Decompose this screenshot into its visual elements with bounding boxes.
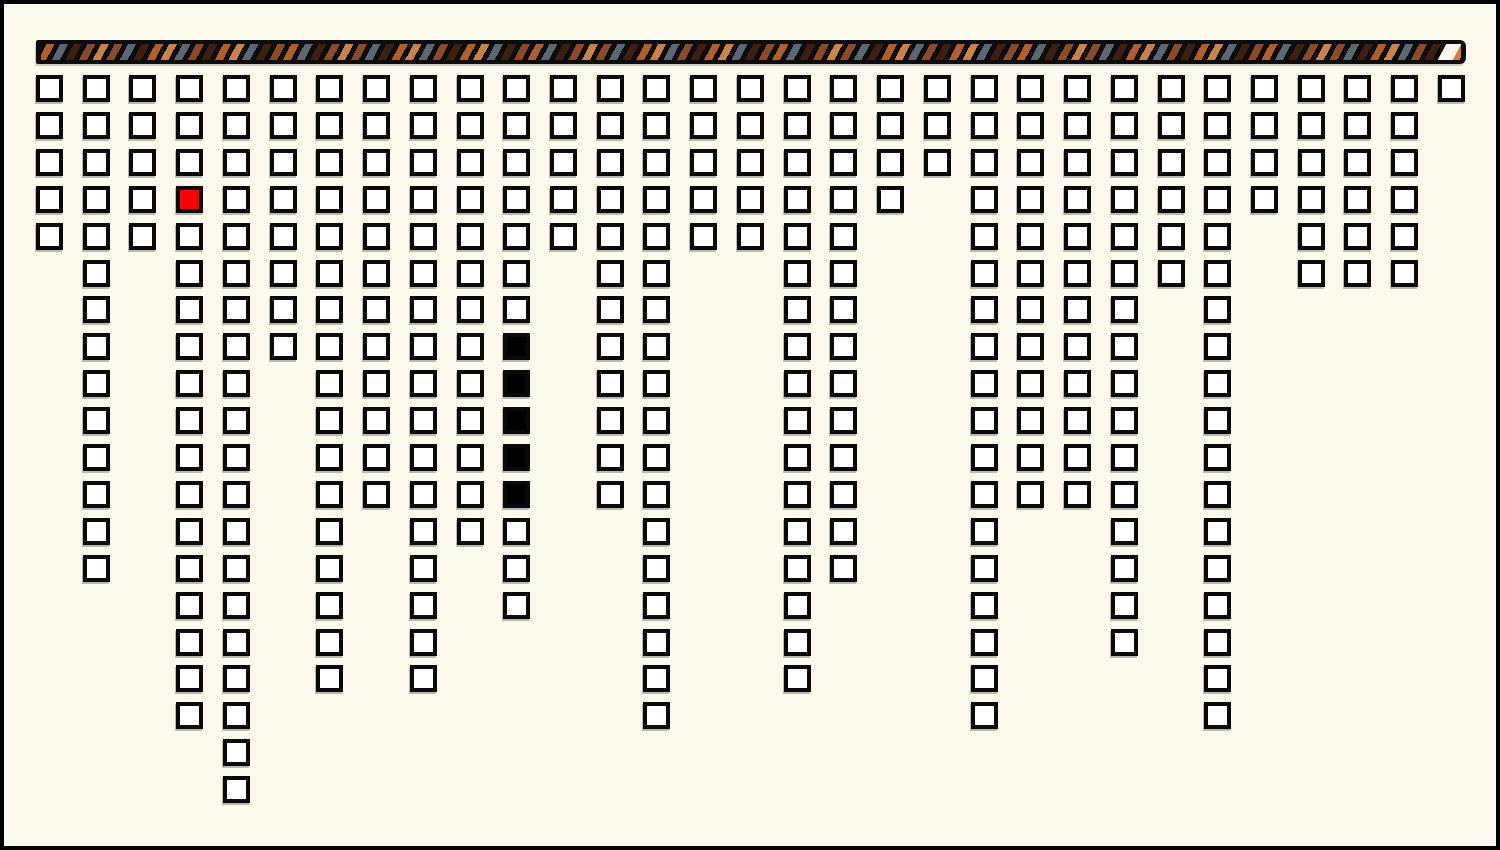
grid-cell[interactable] [643, 702, 670, 729]
grid-cell[interactable] [223, 518, 250, 545]
grid-cell[interactable] [550, 223, 577, 250]
grid-cell[interactable] [784, 186, 811, 213]
grid-cell[interactable] [363, 370, 390, 397]
grid-cell[interactable] [643, 481, 670, 508]
grid-cell[interactable] [223, 370, 250, 397]
grid-cell[interactable] [83, 112, 110, 139]
grid-cell[interactable] [503, 260, 530, 287]
grid-cell[interactable] [176, 370, 203, 397]
grid-cell[interactable] [784, 223, 811, 250]
grid-cell[interactable] [971, 112, 998, 139]
grid-cell[interactable] [971, 407, 998, 434]
grid-cell[interactable] [1064, 75, 1091, 102]
grid-cell[interactable] [1204, 629, 1231, 656]
grid-cell[interactable] [597, 75, 624, 102]
grid-cell[interactable] [457, 112, 484, 139]
grid-cell[interactable] [784, 112, 811, 139]
grid-cell[interactable] [1111, 370, 1138, 397]
grid-cell[interactable] [550, 112, 577, 139]
grid-cell[interactable] [971, 296, 998, 323]
grid-cell[interactable] [643, 629, 670, 656]
grid-cell[interactable] [1111, 260, 1138, 287]
filled-cell-black[interactable] [503, 370, 530, 397]
grid-cell[interactable] [737, 75, 764, 102]
highlighted-cell-red[interactable] [176, 186, 203, 213]
grid-cell[interactable] [597, 444, 624, 471]
grid-cell[interactable] [597, 149, 624, 176]
grid-cell[interactable] [176, 555, 203, 582]
grid-cell[interactable] [1391, 112, 1418, 139]
grid-cell[interactable] [1204, 260, 1231, 287]
grid-cell[interactable] [410, 75, 437, 102]
grid-cell[interactable] [223, 75, 250, 102]
grid-cell[interactable] [971, 555, 998, 582]
grid-cell[interactable] [1017, 223, 1044, 250]
grid-cell[interactable] [316, 112, 343, 139]
grid-cell[interactable] [784, 75, 811, 102]
grid-cell[interactable] [503, 296, 530, 323]
grid-cell[interactable] [223, 776, 250, 803]
grid-cell[interactable] [363, 112, 390, 139]
grid-cell[interactable] [270, 333, 297, 360]
grid-cell[interactable] [971, 665, 998, 692]
grid-cell[interactable] [176, 665, 203, 692]
grid-cell[interactable] [1017, 260, 1044, 287]
grid-cell[interactable] [1204, 296, 1231, 323]
grid-cell[interactable] [1064, 149, 1091, 176]
grid-cell[interactable] [784, 333, 811, 360]
grid-cell[interactable] [363, 186, 390, 213]
grid-cell[interactable] [1204, 149, 1231, 176]
grid-cell[interactable] [737, 223, 764, 250]
grid-cell[interactable] [223, 112, 250, 139]
grid-cell[interactable] [457, 186, 484, 213]
grid-cell[interactable] [1391, 186, 1418, 213]
grid-cell[interactable] [1158, 149, 1185, 176]
grid-cell[interactable] [316, 223, 343, 250]
grid-cell[interactable] [1111, 75, 1138, 102]
grid-cell[interactable] [597, 260, 624, 287]
grid-cell[interactable] [1251, 75, 1278, 102]
grid-cell[interactable] [176, 592, 203, 619]
grid-cell[interactable] [1391, 75, 1418, 102]
grid-cell[interactable] [1391, 260, 1418, 287]
grid-cell[interactable] [690, 223, 717, 250]
grid-cell[interactable] [1111, 223, 1138, 250]
grid-cell[interactable] [410, 592, 437, 619]
grid-cell[interactable] [1111, 112, 1138, 139]
grid-cell[interactable] [1017, 75, 1044, 102]
grid-cell[interactable] [223, 186, 250, 213]
grid-cell[interactable] [690, 75, 717, 102]
grid-cell[interactable] [1111, 592, 1138, 619]
grid-cell[interactable] [1158, 260, 1185, 287]
grid-cell[interactable] [597, 186, 624, 213]
grid-cell[interactable] [971, 75, 998, 102]
grid-cell[interactable] [176, 223, 203, 250]
grid-cell[interactable] [643, 296, 670, 323]
grid-cell[interactable] [971, 629, 998, 656]
grid-cell[interactable] [1391, 223, 1418, 250]
grid-cell[interactable] [270, 186, 297, 213]
grid-cell[interactable] [550, 75, 577, 102]
grid-cell[interactable] [643, 665, 670, 692]
grid-cell[interactable] [1204, 370, 1231, 397]
grid-cell[interactable] [176, 75, 203, 102]
grid-cell[interactable] [1344, 112, 1371, 139]
grid-cell[interactable] [971, 702, 998, 729]
grid-cell[interactable] [410, 223, 437, 250]
grid-cell[interactable] [784, 444, 811, 471]
grid-cell[interactable] [316, 407, 343, 434]
grid-cell[interactable] [316, 333, 343, 360]
grid-cell[interactable] [363, 260, 390, 287]
grid-cell[interactable] [410, 112, 437, 139]
grid-cell[interactable] [1204, 702, 1231, 729]
grid-cell[interactable] [1017, 112, 1044, 139]
grid-cell[interactable] [1204, 444, 1231, 471]
grid-cell[interactable] [363, 333, 390, 360]
grid-cell[interactable] [270, 223, 297, 250]
grid-cell[interactable] [36, 75, 63, 102]
grid-cell[interactable] [1298, 149, 1325, 176]
grid-cell[interactable] [1064, 407, 1091, 434]
grid-cell[interactable] [410, 260, 437, 287]
grid-cell[interactable] [1344, 186, 1371, 213]
grid-cell[interactable] [1158, 186, 1185, 213]
grid-cell[interactable] [1251, 149, 1278, 176]
grid-cell[interactable] [129, 149, 156, 176]
grid-cell[interactable] [270, 112, 297, 139]
grid-cell[interactable] [1064, 223, 1091, 250]
grid-cell[interactable] [457, 296, 484, 323]
grid-cell[interactable] [597, 481, 624, 508]
grid-cell[interactable] [223, 444, 250, 471]
grid-cell[interactable] [1204, 223, 1231, 250]
grid-cell[interactable] [971, 260, 998, 287]
grid-cell[interactable] [363, 481, 390, 508]
grid-cell[interactable] [316, 75, 343, 102]
grid-cell[interactable] [784, 555, 811, 582]
grid-cell[interactable] [410, 481, 437, 508]
grid-cell[interactable] [1158, 223, 1185, 250]
grid-cell[interactable] [830, 407, 857, 434]
grid-cell[interactable] [316, 629, 343, 656]
grid-cell[interactable] [690, 112, 717, 139]
grid-cell[interactable] [503, 186, 530, 213]
grid-cell[interactable] [784, 260, 811, 287]
grid-cell[interactable] [1064, 260, 1091, 287]
grid-cell[interactable] [316, 592, 343, 619]
grid-cell[interactable] [971, 223, 998, 250]
grid-cell[interactable] [1391, 149, 1418, 176]
grid-cell[interactable] [550, 149, 577, 176]
grid-cell[interactable] [223, 592, 250, 619]
grid-cell[interactable] [737, 149, 764, 176]
grid-cell[interactable] [643, 333, 670, 360]
grid-cell[interactable] [830, 518, 857, 545]
grid-cell[interactable] [457, 370, 484, 397]
grid-cell[interactable] [1344, 75, 1371, 102]
grid-cell[interactable] [316, 296, 343, 323]
grid-cell[interactable] [223, 481, 250, 508]
grid-cell[interactable] [784, 407, 811, 434]
grid-cell[interactable] [1064, 296, 1091, 323]
grid-cell[interactable] [457, 149, 484, 176]
grid-cell[interactable] [270, 75, 297, 102]
grid-cell[interactable] [784, 370, 811, 397]
grid-cell[interactable] [971, 186, 998, 213]
grid-cell[interactable] [877, 186, 904, 213]
grid-cell[interactable] [316, 665, 343, 692]
grid-cell[interactable] [1064, 112, 1091, 139]
grid-cell[interactable] [176, 260, 203, 287]
grid-cell[interactable] [316, 481, 343, 508]
grid-cell[interactable] [784, 481, 811, 508]
grid-cell[interactable] [1158, 75, 1185, 102]
grid-cell[interactable] [223, 296, 250, 323]
grid-cell[interactable] [83, 481, 110, 508]
grid-cell[interactable] [1204, 481, 1231, 508]
grid-cell[interactable] [316, 444, 343, 471]
grid-cell[interactable] [223, 333, 250, 360]
grid-cell[interactable] [410, 370, 437, 397]
grid-cell[interactable] [1204, 75, 1231, 102]
grid-cell[interactable] [129, 112, 156, 139]
grid-cell[interactable] [737, 112, 764, 139]
grid-cell[interactable] [1298, 260, 1325, 287]
grid-cell[interactable] [410, 555, 437, 582]
grid-cell[interactable] [971, 149, 998, 176]
grid-cell[interactable] [83, 296, 110, 323]
grid-cell[interactable] [83, 444, 110, 471]
grid-cell[interactable] [924, 149, 951, 176]
grid-cell[interactable] [83, 407, 110, 434]
grid-cell[interactable] [1017, 407, 1044, 434]
grid-cell[interactable] [270, 296, 297, 323]
grid-cell[interactable] [924, 112, 951, 139]
grid-cell[interactable] [1438, 75, 1465, 102]
grid-cell[interactable] [1298, 75, 1325, 102]
grid-cell[interactable] [457, 260, 484, 287]
grid-cell[interactable] [1204, 333, 1231, 360]
grid-cell[interactable] [316, 149, 343, 176]
grid-cell[interactable] [83, 75, 110, 102]
grid-cell[interactable] [503, 112, 530, 139]
grid-cell[interactable] [363, 296, 390, 323]
grid-cell[interactable] [1017, 149, 1044, 176]
grid-cell[interactable] [830, 370, 857, 397]
grid-cell[interactable] [971, 333, 998, 360]
grid-cell[interactable] [1111, 333, 1138, 360]
grid-cell[interactable] [1204, 518, 1231, 545]
grid-cell[interactable] [410, 518, 437, 545]
grid-cell[interactable] [316, 370, 343, 397]
filled-cell-black[interactable] [503, 444, 530, 471]
grid-cell[interactable] [223, 702, 250, 729]
grid-cell[interactable] [830, 149, 857, 176]
grid-cell[interactable] [457, 223, 484, 250]
grid-cell[interactable] [363, 223, 390, 250]
grid-cell[interactable] [129, 186, 156, 213]
grid-cell[interactable] [690, 186, 717, 213]
grid-cell[interactable] [457, 481, 484, 508]
grid-cell[interactable] [1344, 149, 1371, 176]
grid-cell[interactable] [1017, 333, 1044, 360]
grid-cell[interactable] [176, 518, 203, 545]
grid-cell[interactable] [1111, 629, 1138, 656]
grid-cell[interactable] [1017, 481, 1044, 508]
grid-cell[interactable] [363, 149, 390, 176]
grid-cell[interactable] [410, 186, 437, 213]
grid-cell[interactable] [1158, 112, 1185, 139]
grid-cell[interactable] [1064, 333, 1091, 360]
grid-cell[interactable] [971, 592, 998, 619]
grid-cell[interactable] [1064, 481, 1091, 508]
grid-cell[interactable] [270, 149, 297, 176]
grid-cell[interactable] [83, 370, 110, 397]
grid-cell[interactable] [643, 112, 670, 139]
grid-cell[interactable] [830, 296, 857, 323]
grid-cell[interactable] [643, 444, 670, 471]
grid-cell[interactable] [503, 223, 530, 250]
grid-cell[interactable] [643, 407, 670, 434]
grid-cell[interactable] [1064, 370, 1091, 397]
grid-cell[interactable] [1017, 296, 1044, 323]
grid-cell[interactable] [36, 223, 63, 250]
grid-cell[interactable] [83, 518, 110, 545]
grid-cell[interactable] [784, 629, 811, 656]
grid-cell[interactable] [176, 149, 203, 176]
grid-cell[interactable] [1017, 444, 1044, 471]
grid-cell[interactable] [457, 333, 484, 360]
grid-cell[interactable] [83, 555, 110, 582]
grid-cell[interactable] [1298, 112, 1325, 139]
filled-cell-black[interactable] [503, 333, 530, 360]
grid-cell[interactable] [830, 260, 857, 287]
grid-cell[interactable] [1111, 407, 1138, 434]
grid-cell[interactable] [830, 444, 857, 471]
grid-cell[interactable] [363, 444, 390, 471]
grid-cell[interactable] [643, 75, 670, 102]
grid-cell[interactable] [410, 629, 437, 656]
grid-cell[interactable] [129, 223, 156, 250]
grid-cell[interactable] [1204, 112, 1231, 139]
grid-cell[interactable] [597, 370, 624, 397]
grid-cell[interactable] [176, 481, 203, 508]
grid-cell[interactable] [83, 186, 110, 213]
grid-cell[interactable] [1111, 555, 1138, 582]
grid-cell[interactable] [1344, 260, 1371, 287]
grid-cell[interactable] [223, 260, 250, 287]
grid-cell[interactable] [410, 665, 437, 692]
grid-cell[interactable] [877, 112, 904, 139]
grid-cell[interactable] [457, 518, 484, 545]
grid-cell[interactable] [1017, 186, 1044, 213]
grid-cell[interactable] [1064, 186, 1091, 213]
grid-cell[interactable] [971, 370, 998, 397]
grid-cell[interactable] [1251, 186, 1278, 213]
grid-cell[interactable] [36, 112, 63, 139]
grid-cell[interactable] [223, 739, 250, 766]
grid-cell[interactable] [597, 296, 624, 323]
grid-cell[interactable] [83, 149, 110, 176]
grid-cell[interactable] [316, 518, 343, 545]
grid-cell[interactable] [316, 260, 343, 287]
grid-cell[interactable] [176, 702, 203, 729]
grid-cell[interactable] [223, 555, 250, 582]
grid-cell[interactable] [830, 186, 857, 213]
grid-cell[interactable] [924, 75, 951, 102]
grid-cell[interactable] [830, 555, 857, 582]
grid-cell[interactable] [1111, 444, 1138, 471]
grid-cell[interactable] [457, 444, 484, 471]
grid-cell[interactable] [410, 296, 437, 323]
grid-cell[interactable] [830, 75, 857, 102]
grid-cell[interactable] [597, 407, 624, 434]
grid-cell[interactable] [971, 518, 998, 545]
grid-cell[interactable] [1251, 112, 1278, 139]
grid-cell[interactable] [643, 186, 670, 213]
filled-cell-black[interactable] [503, 481, 530, 508]
grid-cell[interactable] [410, 444, 437, 471]
grid-cell[interactable] [270, 260, 297, 287]
grid-cell[interactable] [971, 444, 998, 471]
grid-cell[interactable] [1204, 407, 1231, 434]
grid-cell[interactable] [223, 629, 250, 656]
grid-cell[interactable] [784, 665, 811, 692]
grid-cell[interactable] [643, 223, 670, 250]
grid-cell[interactable] [1344, 223, 1371, 250]
grid-cell[interactable] [1111, 186, 1138, 213]
grid-cell[interactable] [83, 223, 110, 250]
grid-cell[interactable] [176, 444, 203, 471]
grid-cell[interactable] [830, 223, 857, 250]
grid-cell[interactable] [1204, 665, 1231, 692]
grid-cell[interactable] [1298, 186, 1325, 213]
grid-cell[interactable] [363, 407, 390, 434]
grid-cell[interactable] [176, 629, 203, 656]
grid-cell[interactable] [410, 333, 437, 360]
grid-cell[interactable] [643, 555, 670, 582]
grid-cell[interactable] [316, 555, 343, 582]
grid-cell[interactable] [129, 75, 156, 102]
grid-cell[interactable] [1064, 444, 1091, 471]
grid-cell[interactable] [503, 555, 530, 582]
grid-cell[interactable] [1017, 370, 1044, 397]
grid-cell[interactable] [830, 481, 857, 508]
grid-cell[interactable] [316, 186, 343, 213]
grid-cell[interactable] [643, 149, 670, 176]
grid-cell[interactable] [83, 333, 110, 360]
grid-cell[interactable] [223, 407, 250, 434]
grid-cell[interactable] [176, 333, 203, 360]
grid-cell[interactable] [737, 186, 764, 213]
grid-cell[interactable] [643, 370, 670, 397]
grid-cell[interactable] [410, 407, 437, 434]
grid-cell[interactable] [784, 592, 811, 619]
filled-cell-black[interactable] [503, 407, 530, 434]
grid-cell[interactable] [176, 296, 203, 323]
grid-cell[interactable] [550, 186, 577, 213]
grid-cell[interactable] [223, 223, 250, 250]
grid-cell[interactable] [363, 75, 390, 102]
grid-cell[interactable] [830, 333, 857, 360]
grid-cell[interactable] [643, 518, 670, 545]
grid-cell[interactable] [597, 223, 624, 250]
grid-cell[interactable] [503, 592, 530, 619]
grid-cell[interactable] [1298, 223, 1325, 250]
